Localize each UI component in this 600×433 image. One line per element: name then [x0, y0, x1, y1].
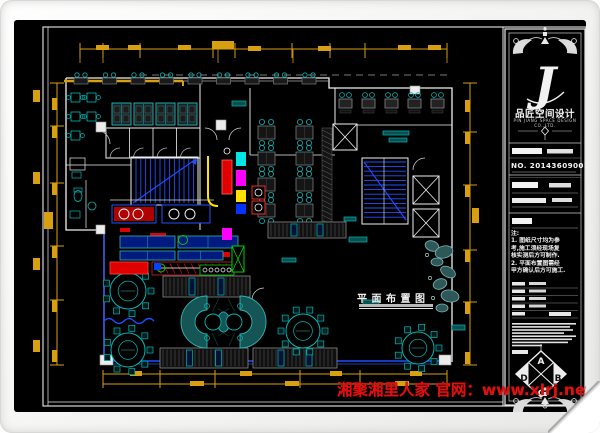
cad-sheet: J A B C D 平面布置图 品匠空间设计 PIN JIANG SPACE D… [14, 20, 586, 412]
company-subtitle: PIN JIANG SPACE DESIGN CO.,LTD. [505, 118, 585, 128]
company-name: 品匠空间设计 [505, 106, 585, 120]
title-block-notes: 注: 1. 图纸尺寸均为参 考,施工须经现场复 核实测后方可制作. 2. 平面布… [511, 231, 581, 275]
page-curl-icon [548, 381, 600, 433]
plan-title-underline-2 [359, 308, 433, 309]
project-number: NO. 20143609001 [511, 161, 586, 170]
plan-title: 平面布置图 [357, 290, 430, 305]
plan-title-underline [359, 304, 433, 307]
photo-frame: J A B C D 平面布置图 品匠空间设计 PIN JIANG SPACE D… [0, 0, 600, 433]
